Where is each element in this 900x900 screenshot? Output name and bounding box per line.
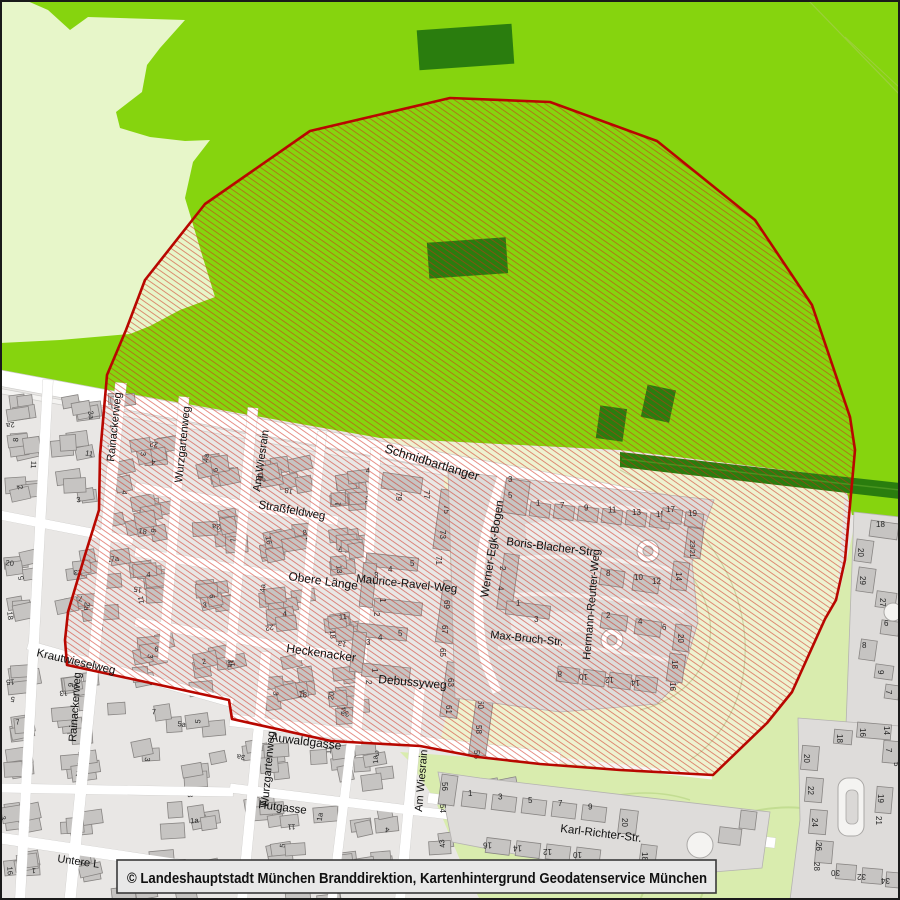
svg-text:56: 56 [440, 782, 449, 791]
svg-text:3: 3 [498, 792, 503, 801]
svg-text:6: 6 [884, 619, 889, 628]
svg-text:29: 29 [858, 576, 867, 585]
svg-text:14: 14 [513, 844, 522, 853]
svg-text:11: 11 [85, 448, 94, 458]
svg-text:7: 7 [884, 690, 893, 695]
svg-text:18: 18 [835, 734, 844, 743]
svg-text:34: 34 [881, 876, 890, 885]
svg-text:18: 18 [876, 520, 885, 529]
svg-text:19: 19 [876, 794, 885, 803]
svg-text:22: 22 [806, 786, 815, 795]
svg-text:43: 43 [437, 839, 447, 849]
svg-text:18: 18 [5, 611, 15, 620]
svg-text:11: 11 [29, 461, 38, 469]
svg-text:16: 16 [5, 866, 15, 875]
svg-text:54: 54 [438, 804, 447, 813]
svg-text:20: 20 [802, 754, 811, 763]
svg-text:8: 8 [862, 641, 867, 650]
svg-text:14: 14 [882, 726, 891, 735]
svg-text:12: 12 [543, 847, 552, 856]
svg-text:11: 11 [288, 822, 296, 831]
svg-text:30: 30 [831, 868, 840, 877]
svg-text:1: 1 [31, 866, 36, 875]
svg-text:9: 9 [588, 803, 593, 812]
svg-text:© Landeshauptstadt München Bra: © Landeshauptstadt München Branddirektio… [127, 871, 707, 887]
svg-text:24: 24 [810, 818, 819, 827]
svg-text:8: 8 [11, 438, 20, 442]
svg-text:9: 9 [876, 670, 885, 675]
svg-text:20: 20 [620, 818, 629, 827]
svg-text:1: 1 [468, 789, 473, 798]
svg-text:32: 32 [857, 872, 866, 881]
svg-text:21: 21 [874, 816, 883, 825]
svg-text:7: 7 [558, 799, 563, 808]
svg-text:20: 20 [856, 548, 865, 557]
svg-text:7: 7 [152, 707, 156, 716]
svg-text:26: 26 [814, 842, 823, 851]
svg-text:10: 10 [573, 850, 582, 859]
svg-text:5: 5 [528, 796, 533, 805]
svg-text:16: 16 [483, 840, 492, 849]
svg-text:20: 20 [5, 558, 14, 568]
svg-text:16: 16 [858, 728, 867, 737]
svg-text:7: 7 [884, 748, 893, 753]
svg-text:15: 15 [6, 677, 15, 687]
svg-text:28: 28 [812, 862, 821, 871]
